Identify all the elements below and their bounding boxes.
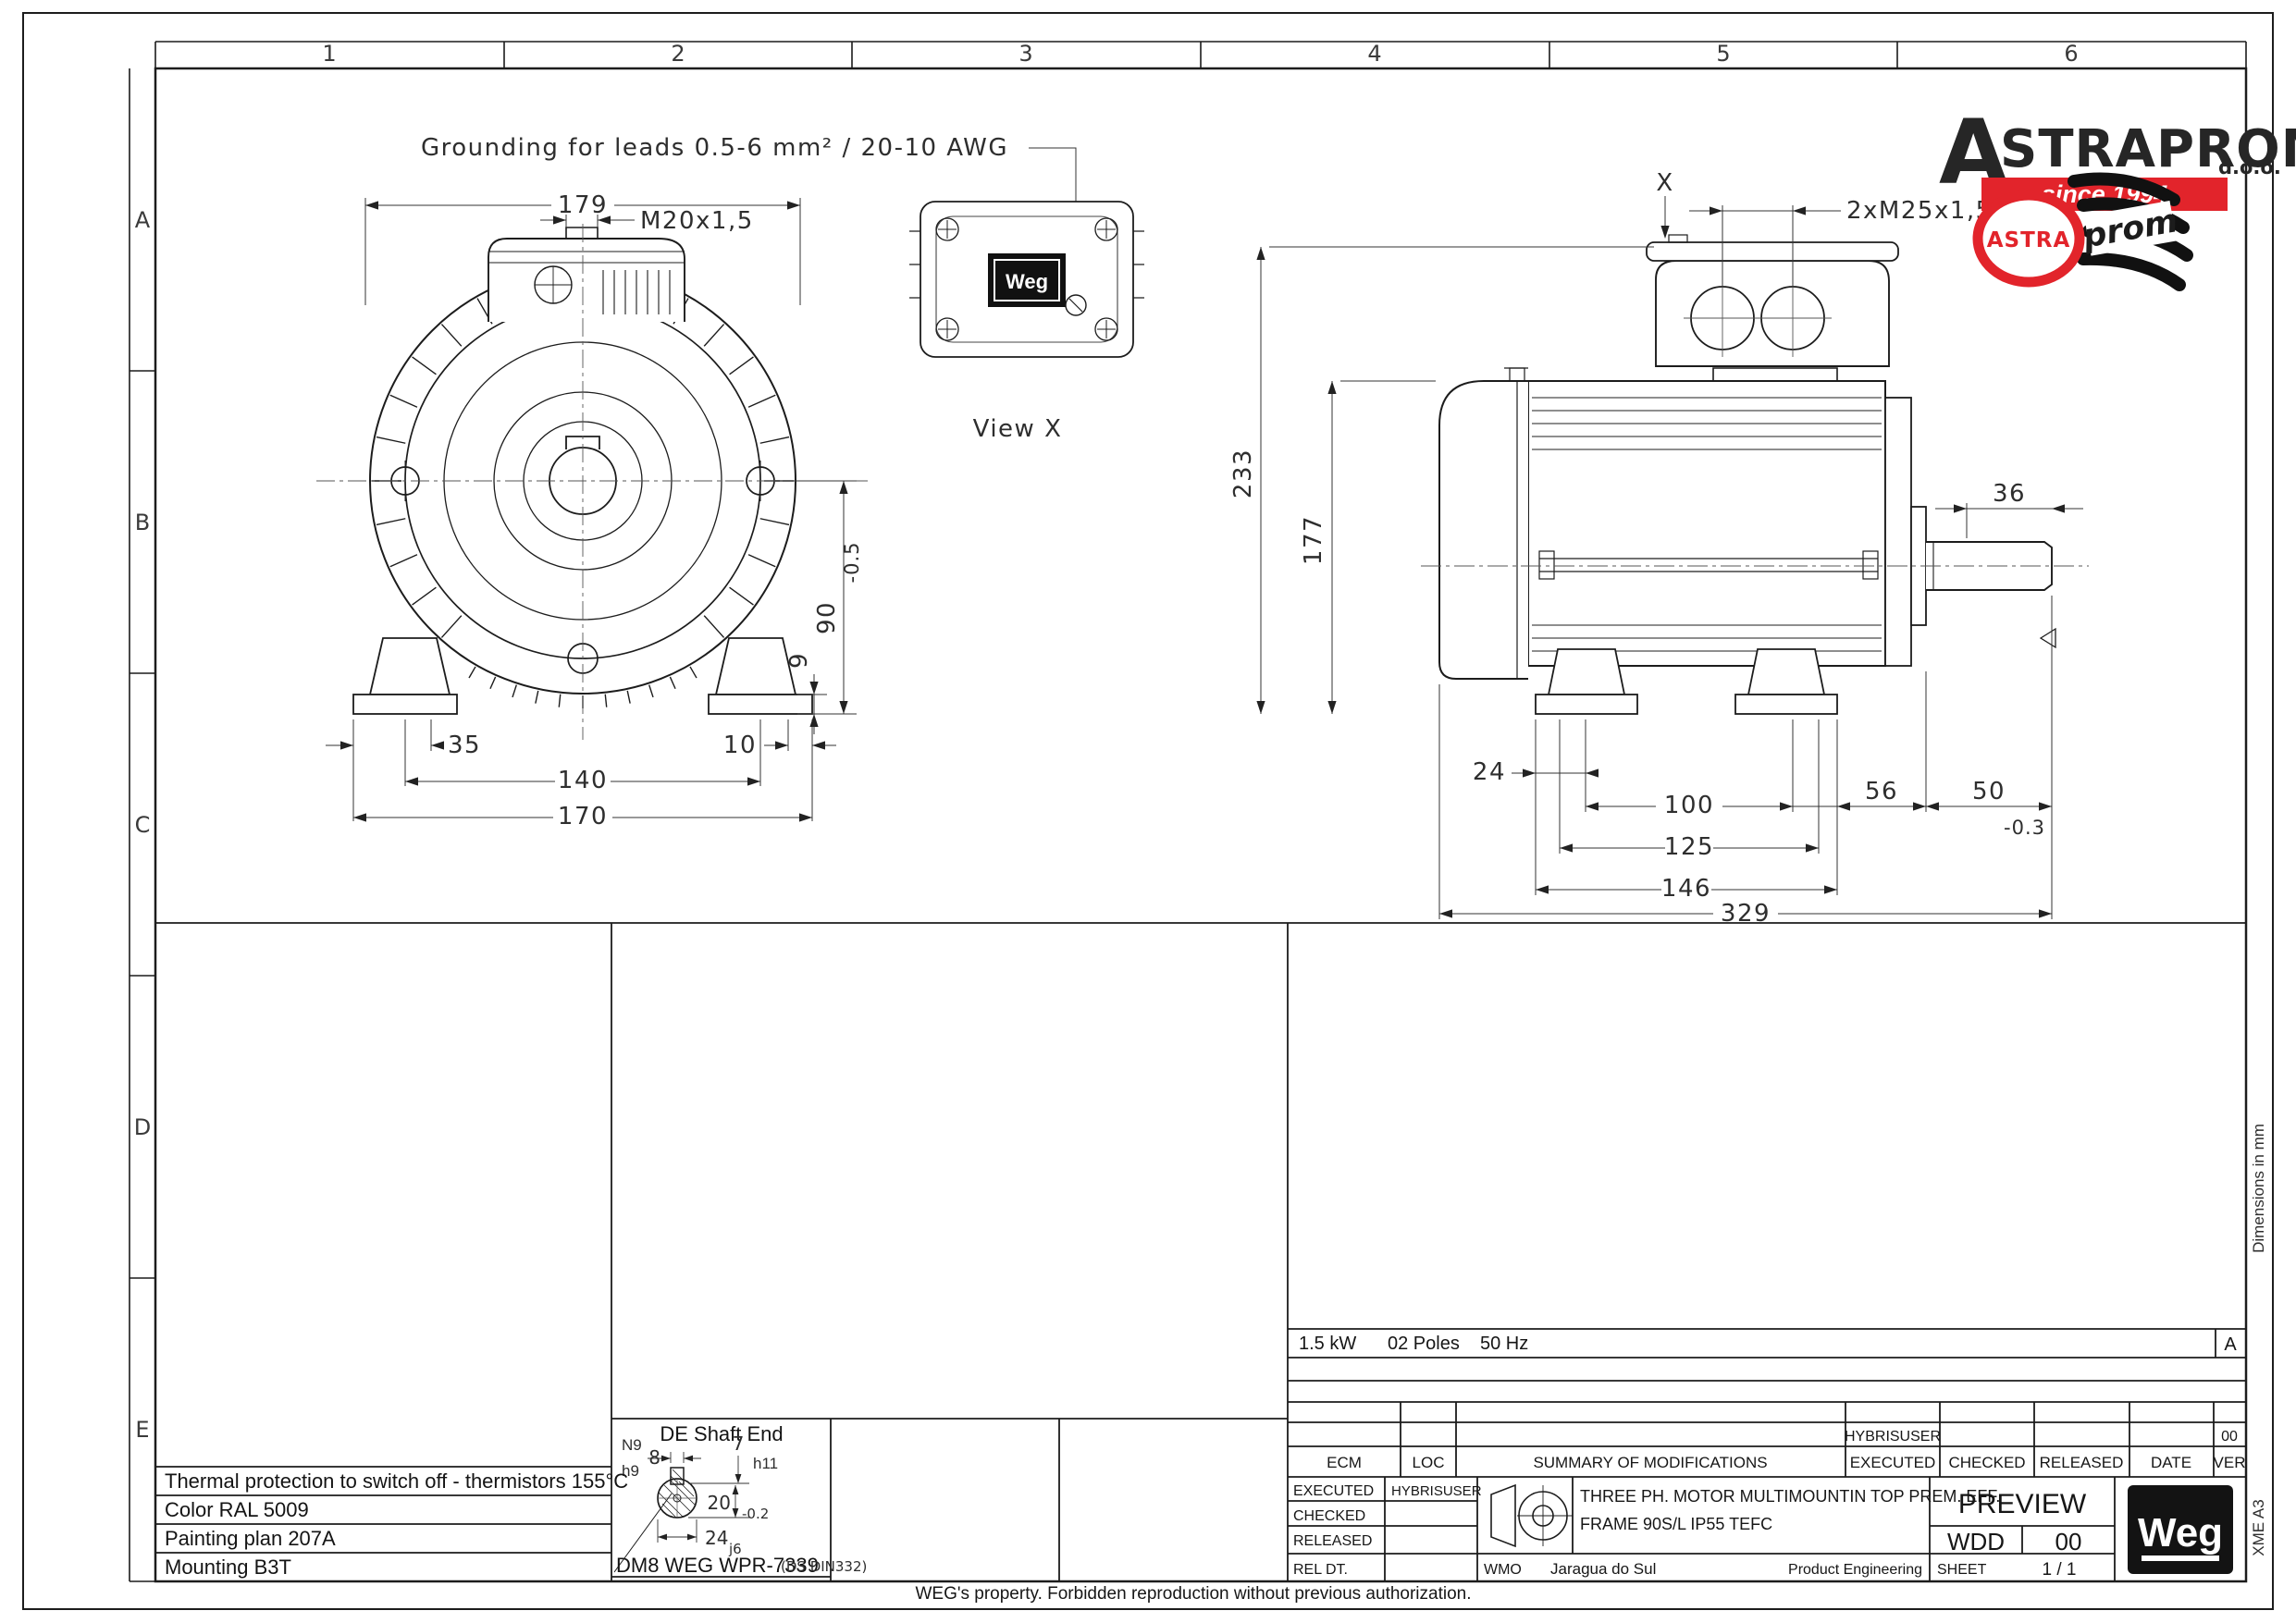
sheet-number: 1 / 1	[2043, 1560, 2077, 1580]
center-drill-std: (DS DIN332)	[781, 1558, 867, 1575]
lbl-released: RELEASED	[1293, 1533, 1372, 1549]
rating-power: 1.5 kW	[1299, 1334, 1356, 1354]
note-thermal: Thermal protection to switch off - therm…	[165, 1469, 628, 1493]
grid-row-label: A	[135, 207, 151, 233]
desc-line1: THREE PH. MOTOR MULTIMOUNTIN TOP PREM. E…	[1580, 1487, 2000, 1506]
grid-row-label: E	[135, 1417, 149, 1443]
dim-36: 36	[1993, 480, 2026, 508]
weg-plate-text: Weg	[1006, 270, 1048, 293]
shaft-end-text: DE Shaft End N9 h9 8 7 h11 20 -0.2 24 j6…	[616, 1422, 867, 1577]
lbl-checked: CHECKED	[1293, 1508, 1365, 1524]
projection-symbol	[1491, 1485, 1573, 1546]
margin-code: XME A3	[2250, 1499, 2267, 1555]
fit-h11: h11	[753, 1455, 778, 1472]
dim-125: 125	[1664, 833, 1714, 861]
dim-shaft-20: 20	[708, 1492, 731, 1514]
shaft-detail-title: DE Shaft End	[660, 1422, 783, 1445]
hdr-date: DATE	[2151, 1454, 2191, 1471]
surface-finish-symbol	[2041, 629, 2055, 647]
side-view	[1421, 235, 2089, 714]
terminal-box-side	[1647, 235, 1898, 381]
note-mounting: Mounting B3T	[165, 1555, 291, 1579]
doc-status: PREVIEW	[1958, 1489, 2087, 1519]
site-plant: Jaragua do Sul	[1550, 1560, 1656, 1578]
engineering-drawing-svg: 1 2 3 4 5 6 A B C D E	[0, 0, 2296, 1623]
rev-row-ver: 00	[2221, 1429, 2238, 1445]
footer-property-note: WEG's property. Forbidden reproduction w…	[915, 1584, 1471, 1604]
hdr-released: RELEASED	[2040, 1454, 2124, 1471]
dim-177: 177	[1300, 515, 1327, 565]
dimensions-unit-note: Dimensions in mm	[2250, 1124, 2267, 1253]
dim-90-tol: -0.5	[841, 542, 863, 584]
dim-10: 10	[723, 732, 757, 759]
rating-freq: 50 Hz	[1480, 1334, 1528, 1354]
sheet-label: SHEET	[1937, 1562, 1987, 1578]
dim-146: 146	[1661, 875, 1711, 903]
rating-poles: 02 Poles	[1388, 1334, 1460, 1354]
hdr-loc: LOC	[1413, 1454, 1445, 1471]
view-x: Weg	[909, 202, 1144, 357]
grid-col-label: 6	[2064, 41, 2078, 67]
dim-50-tol: -0.3	[2004, 817, 2045, 839]
dim-179: 179	[558, 191, 608, 219]
weg-logo-text: Weg	[2138, 1510, 2223, 1555]
weg-logo: Weg	[2128, 1485, 2233, 1574]
doc-type: WDD	[1947, 1528, 2005, 1555]
label-x: X	[1656, 169, 1673, 197]
dim-170: 170	[558, 803, 608, 830]
dim-key-8: 8	[648, 1446, 660, 1469]
rev-row-executed: HYBRISUSER	[1845, 1429, 1941, 1445]
hdr-executed: EXECUTED	[1850, 1454, 1936, 1471]
desc-line2: FRAME 90S/L IP55 TEFC	[1580, 1515, 1772, 1533]
dim-35: 35	[448, 732, 481, 759]
grid-row-label: C	[135, 812, 151, 838]
dim-90: 90	[813, 601, 841, 634]
dim-50: 50	[1972, 778, 2006, 805]
dim-329: 329	[1721, 900, 1771, 928]
revision-letter: A	[2224, 1334, 2237, 1355]
hdr-checked: CHECKED	[1948, 1454, 2025, 1471]
note-color: Color RAL 5009	[165, 1498, 309, 1521]
grid-row-label: D	[134, 1114, 151, 1140]
astraprom-doo: d.o.o.	[2218, 156, 2281, 178]
drawing-sheet: 1 2 3 4 5 6 A B C D E	[0, 0, 2296, 1623]
dim-100: 100	[1664, 792, 1714, 819]
dim-56: 56	[1865, 778, 1898, 805]
site-code: WMO	[1484, 1562, 1522, 1578]
val-executed-by: HYBRISUSER	[1391, 1483, 1482, 1499]
lbl-rel-dt: REL DT.	[1293, 1562, 1348, 1578]
view-x-label: View X	[973, 415, 1063, 443]
hdr-ver: VER	[2214, 1454, 2246, 1471]
lbl-executed: EXECUTED	[1293, 1483, 1374, 1499]
grid-col-label: 5	[1716, 41, 1730, 67]
dim-233: 233	[1229, 449, 1257, 498]
hdr-ecm: ECM	[1327, 1454, 1362, 1471]
dim-key-7: 7	[733, 1432, 745, 1455]
dim-24: 24	[1473, 758, 1506, 786]
grid-col-label: 4	[1367, 41, 1381, 67]
site-dept: Product Engineering	[1788, 1562, 1922, 1578]
key-tol-n9: N9	[622, 1436, 642, 1454]
note-painting: Painting plan 207A	[165, 1527, 336, 1550]
fan-cover	[1439, 368, 1528, 679]
badge-astra-text: ASTRA	[1987, 228, 2071, 252]
dim-shaft-24: 24	[705, 1527, 728, 1549]
grid-row-label: B	[135, 510, 150, 535]
grid-col-label: 2	[671, 41, 685, 67]
weg-nameplate: Weg	[988, 253, 1066, 307]
doc-rev: 00	[2055, 1528, 2082, 1555]
grounding-text: Grounding for leads 0.5-6 mm² / 20-10 AW…	[421, 134, 1008, 162]
hdr-summary: SUMMARY OF MODIFICATIONS	[1533, 1454, 1767, 1471]
dim-9: 9	[785, 652, 813, 669]
sheet-frame	[23, 13, 2273, 1609]
endshield	[1885, 398, 1926, 666]
astraprom-wordmark: A STRAPROM d.o.o. since 1994	[1939, 101, 2296, 211]
grid-col-label: 1	[322, 41, 336, 67]
dim-m20: M20x1,5	[640, 207, 754, 235]
dim-140: 140	[558, 767, 608, 794]
title-block-text: 1.5 kW 02 Poles 50 Hz A HYBRISUSER 00 EC…	[1293, 1334, 2245, 1580]
terminal-box-front	[488, 227, 685, 322]
grid-col-label: 3	[1018, 41, 1032, 67]
tol-02: -0.2	[742, 1506, 769, 1522]
